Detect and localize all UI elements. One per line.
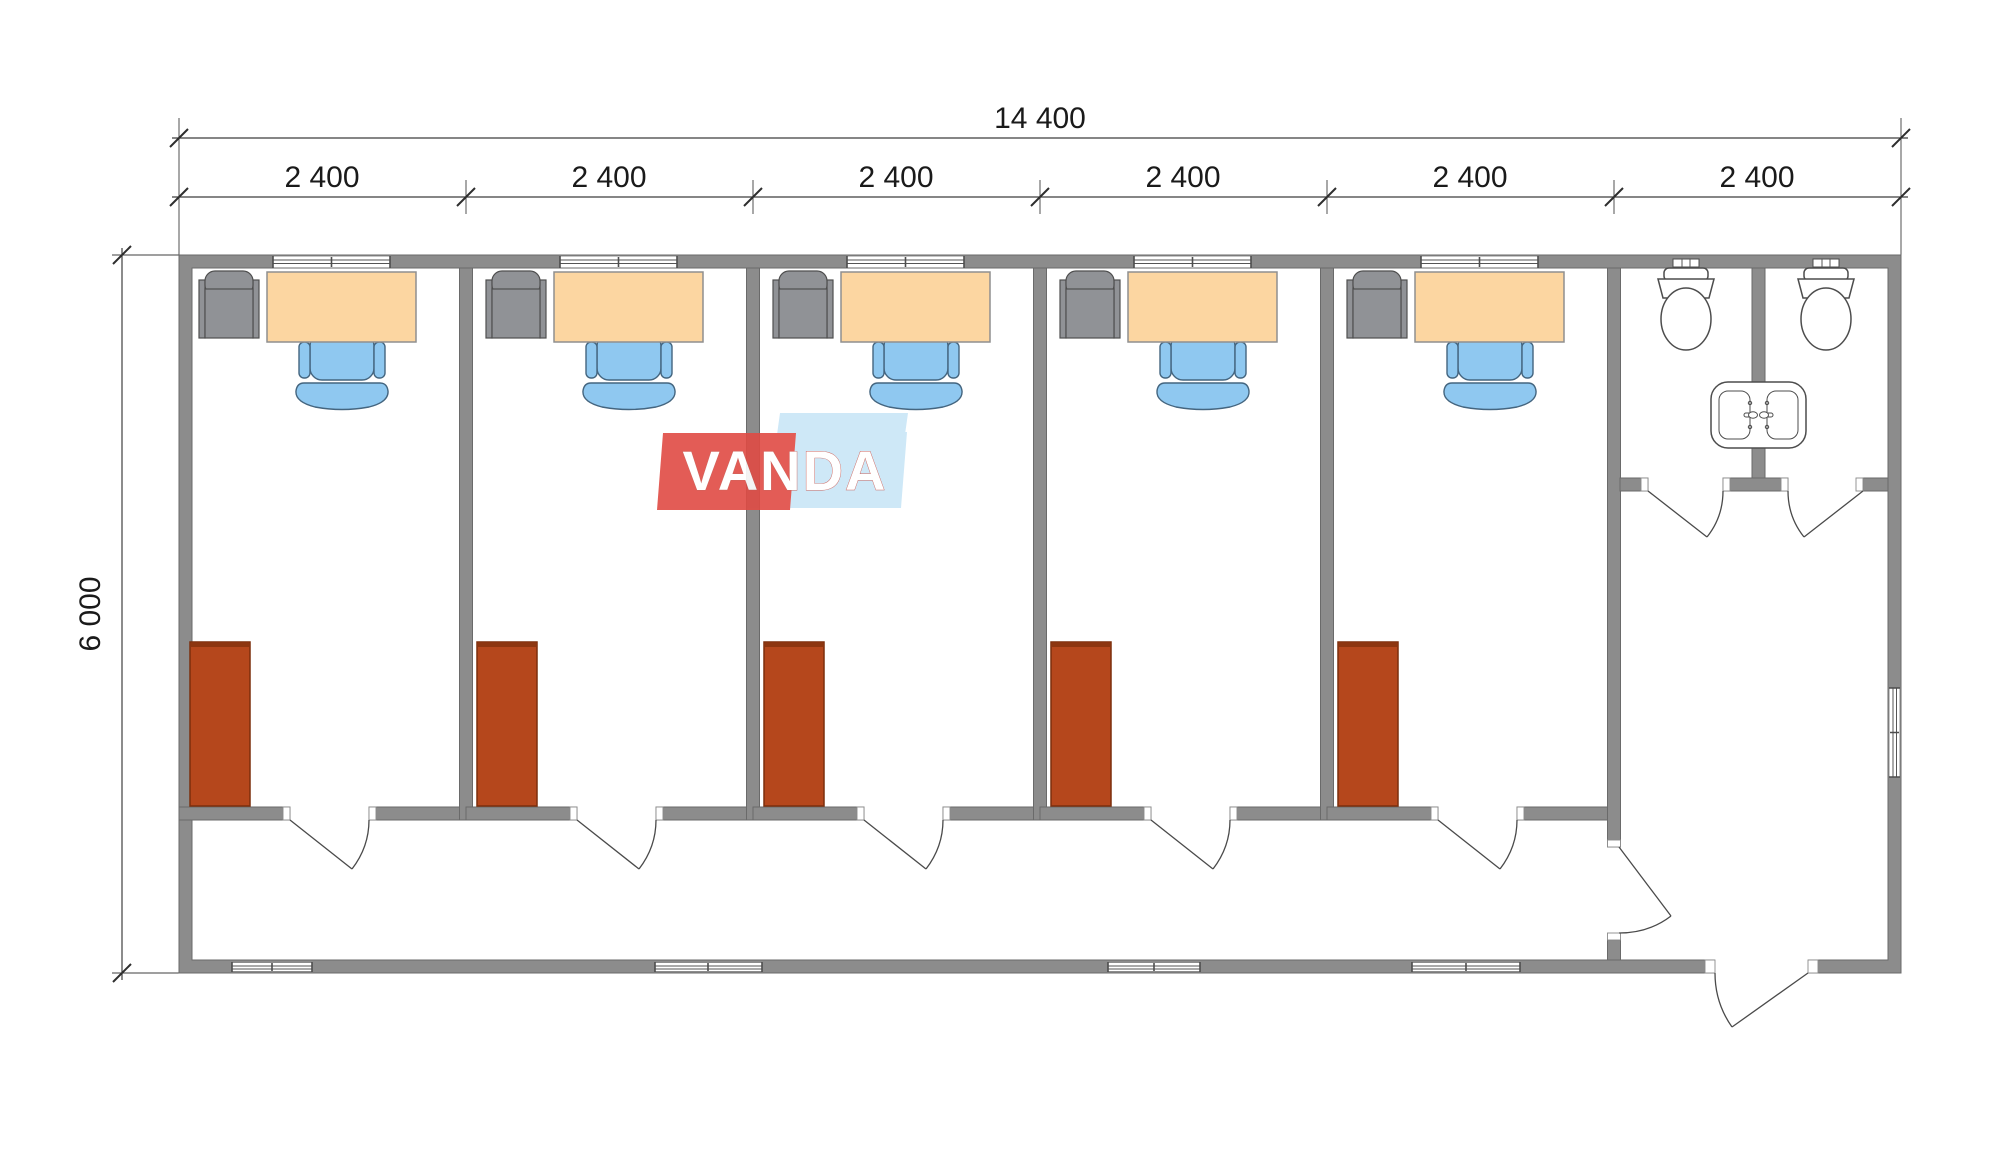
- window-bottom-1: [232, 962, 312, 972]
- door-jamb: [1856, 478, 1863, 491]
- building: [179, 255, 1901, 1027]
- dimension-total-width-label: 14 400: [994, 102, 1086, 135]
- dimension-module-label: 2 400: [571, 161, 646, 194]
- vanda-logo-text: VANDA: [683, 439, 888, 502]
- dimension-module-label: 2 400: [1432, 161, 1507, 194]
- office-room-5: [1327, 256, 1621, 869]
- vanda-logo: VANDA: [657, 413, 908, 510]
- office-room-3: [753, 256, 1047, 869]
- wc-wall: [1723, 478, 1788, 491]
- door-jamb: [1608, 933, 1621, 940]
- door-jamb: [1705, 960, 1715, 973]
- toilet-left-icon: [1658, 259, 1714, 350]
- dimension-height-label: 6 000: [74, 576, 107, 651]
- dimension-module-label: 2 400: [858, 161, 933, 194]
- double-washbasin-icon: [1711, 382, 1806, 448]
- office-room-2: [466, 256, 760, 869]
- window-bottom-4: [1412, 962, 1520, 972]
- entrance-door: [1705, 960, 1818, 1028]
- wc-wall: [1863, 478, 1888, 491]
- dimension-module-label: 2 400: [1145, 161, 1220, 194]
- door-swing-icon: [1707, 491, 1723, 537]
- window-bottom-3: [1108, 962, 1200, 972]
- door-swing-icon: [1788, 491, 1804, 537]
- door-swing-icon: [1715, 973, 1732, 1027]
- window-icon: [1889, 688, 1900, 777]
- toilet-right-icon: [1798, 259, 1854, 350]
- door-jamb: [1781, 478, 1788, 491]
- dimension-module-label: 2 400: [284, 161, 359, 194]
- door-leaf: [1804, 491, 1863, 537]
- door-jamb: [1608, 840, 1621, 847]
- door-leaf: [1648, 491, 1707, 537]
- dimension-total-width: 14 400: [170, 102, 1910, 147]
- door-jamb: [1808, 960, 1818, 973]
- door-jamb: [1723, 478, 1730, 491]
- partition-wall-stub: [1608, 940, 1621, 960]
- window-bottom-2: [655, 962, 762, 972]
- door-jamb: [1641, 478, 1648, 491]
- floor-plan-canvas: 14 400 2 400 2 400 2 400 2 400 2 400 2 4…: [0, 0, 2000, 1172]
- sanitary-module: [1608, 259, 1901, 1027]
- office-room-4: [1040, 256, 1334, 869]
- office-room-1: [179, 256, 473, 869]
- door-leaf: [1732, 973, 1808, 1027]
- wc-partition-wall: [1752, 268, 1765, 491]
- door-leaf: [1619, 847, 1671, 916]
- dimension-height: 6 000: [74, 246, 131, 982]
- door-swing-icon: [1619, 916, 1671, 933]
- dimensions: 14 400 2 400 2 400 2 400 2 400 2 400 2 4…: [74, 102, 1910, 982]
- partition-wall: [1608, 268, 1621, 847]
- dimension-module-label: 2 400: [1719, 161, 1794, 194]
